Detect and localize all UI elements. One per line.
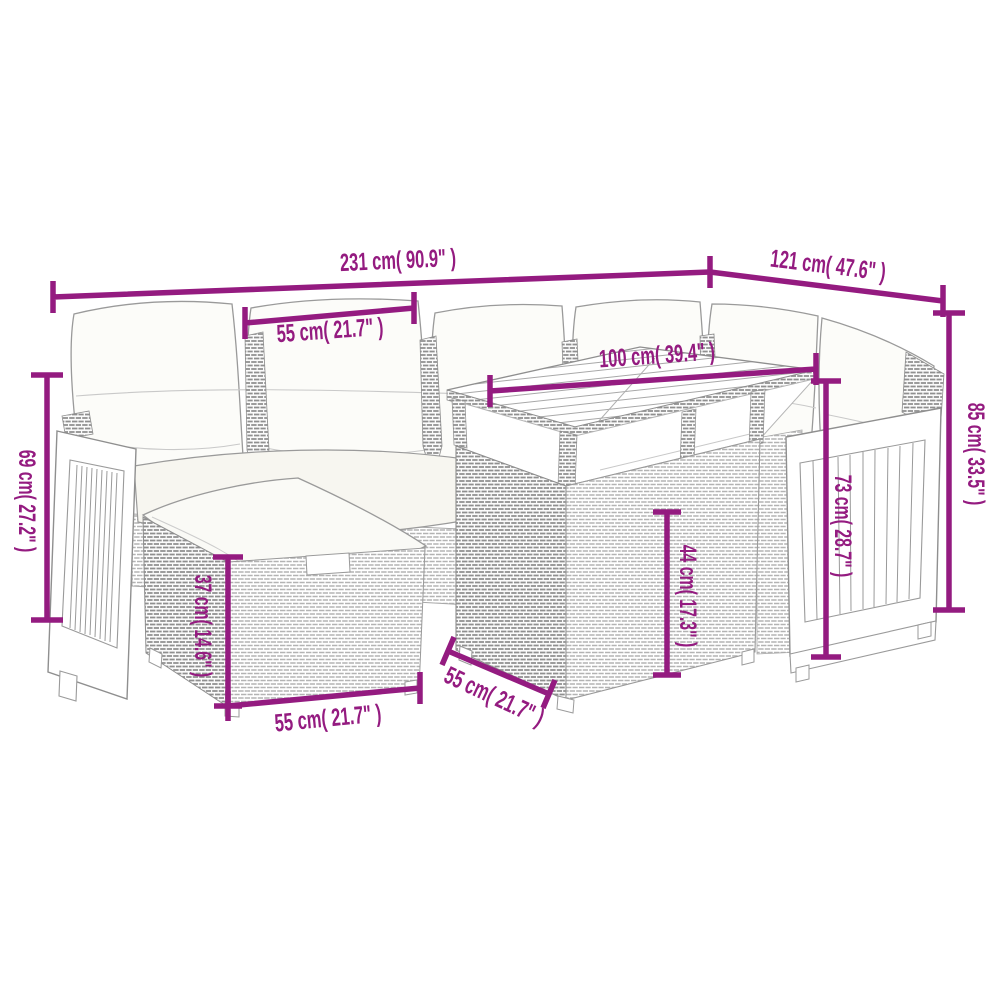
dimension-label-arm-height: 73 cm( 28.7" ) (828, 475, 856, 578)
footstool-handle (306, 553, 350, 575)
dimension-label-back-height: 85 cm( 33.5" ) (961, 403, 989, 506)
panel-leg (59, 671, 77, 701)
dimension-label-footstool-height: 37 cm( 14.6" ) (188, 575, 216, 678)
dimension-label-left-arm-height: 69 cm( 27.2" ) (12, 450, 40, 553)
left-arm-panel (48, 411, 136, 701)
right-arm-panel (786, 408, 941, 682)
dimension-label-table-base-height: 44 cm( 17.3" ) (673, 545, 701, 648)
dimension-label-total-width: 231 cm( 90.9" ) (339, 244, 456, 278)
product-dimension-diagram: 231 cm( 90.9" ) 121 cm( 47.6" ) 55 cm( 2… (0, 0, 1000, 1000)
